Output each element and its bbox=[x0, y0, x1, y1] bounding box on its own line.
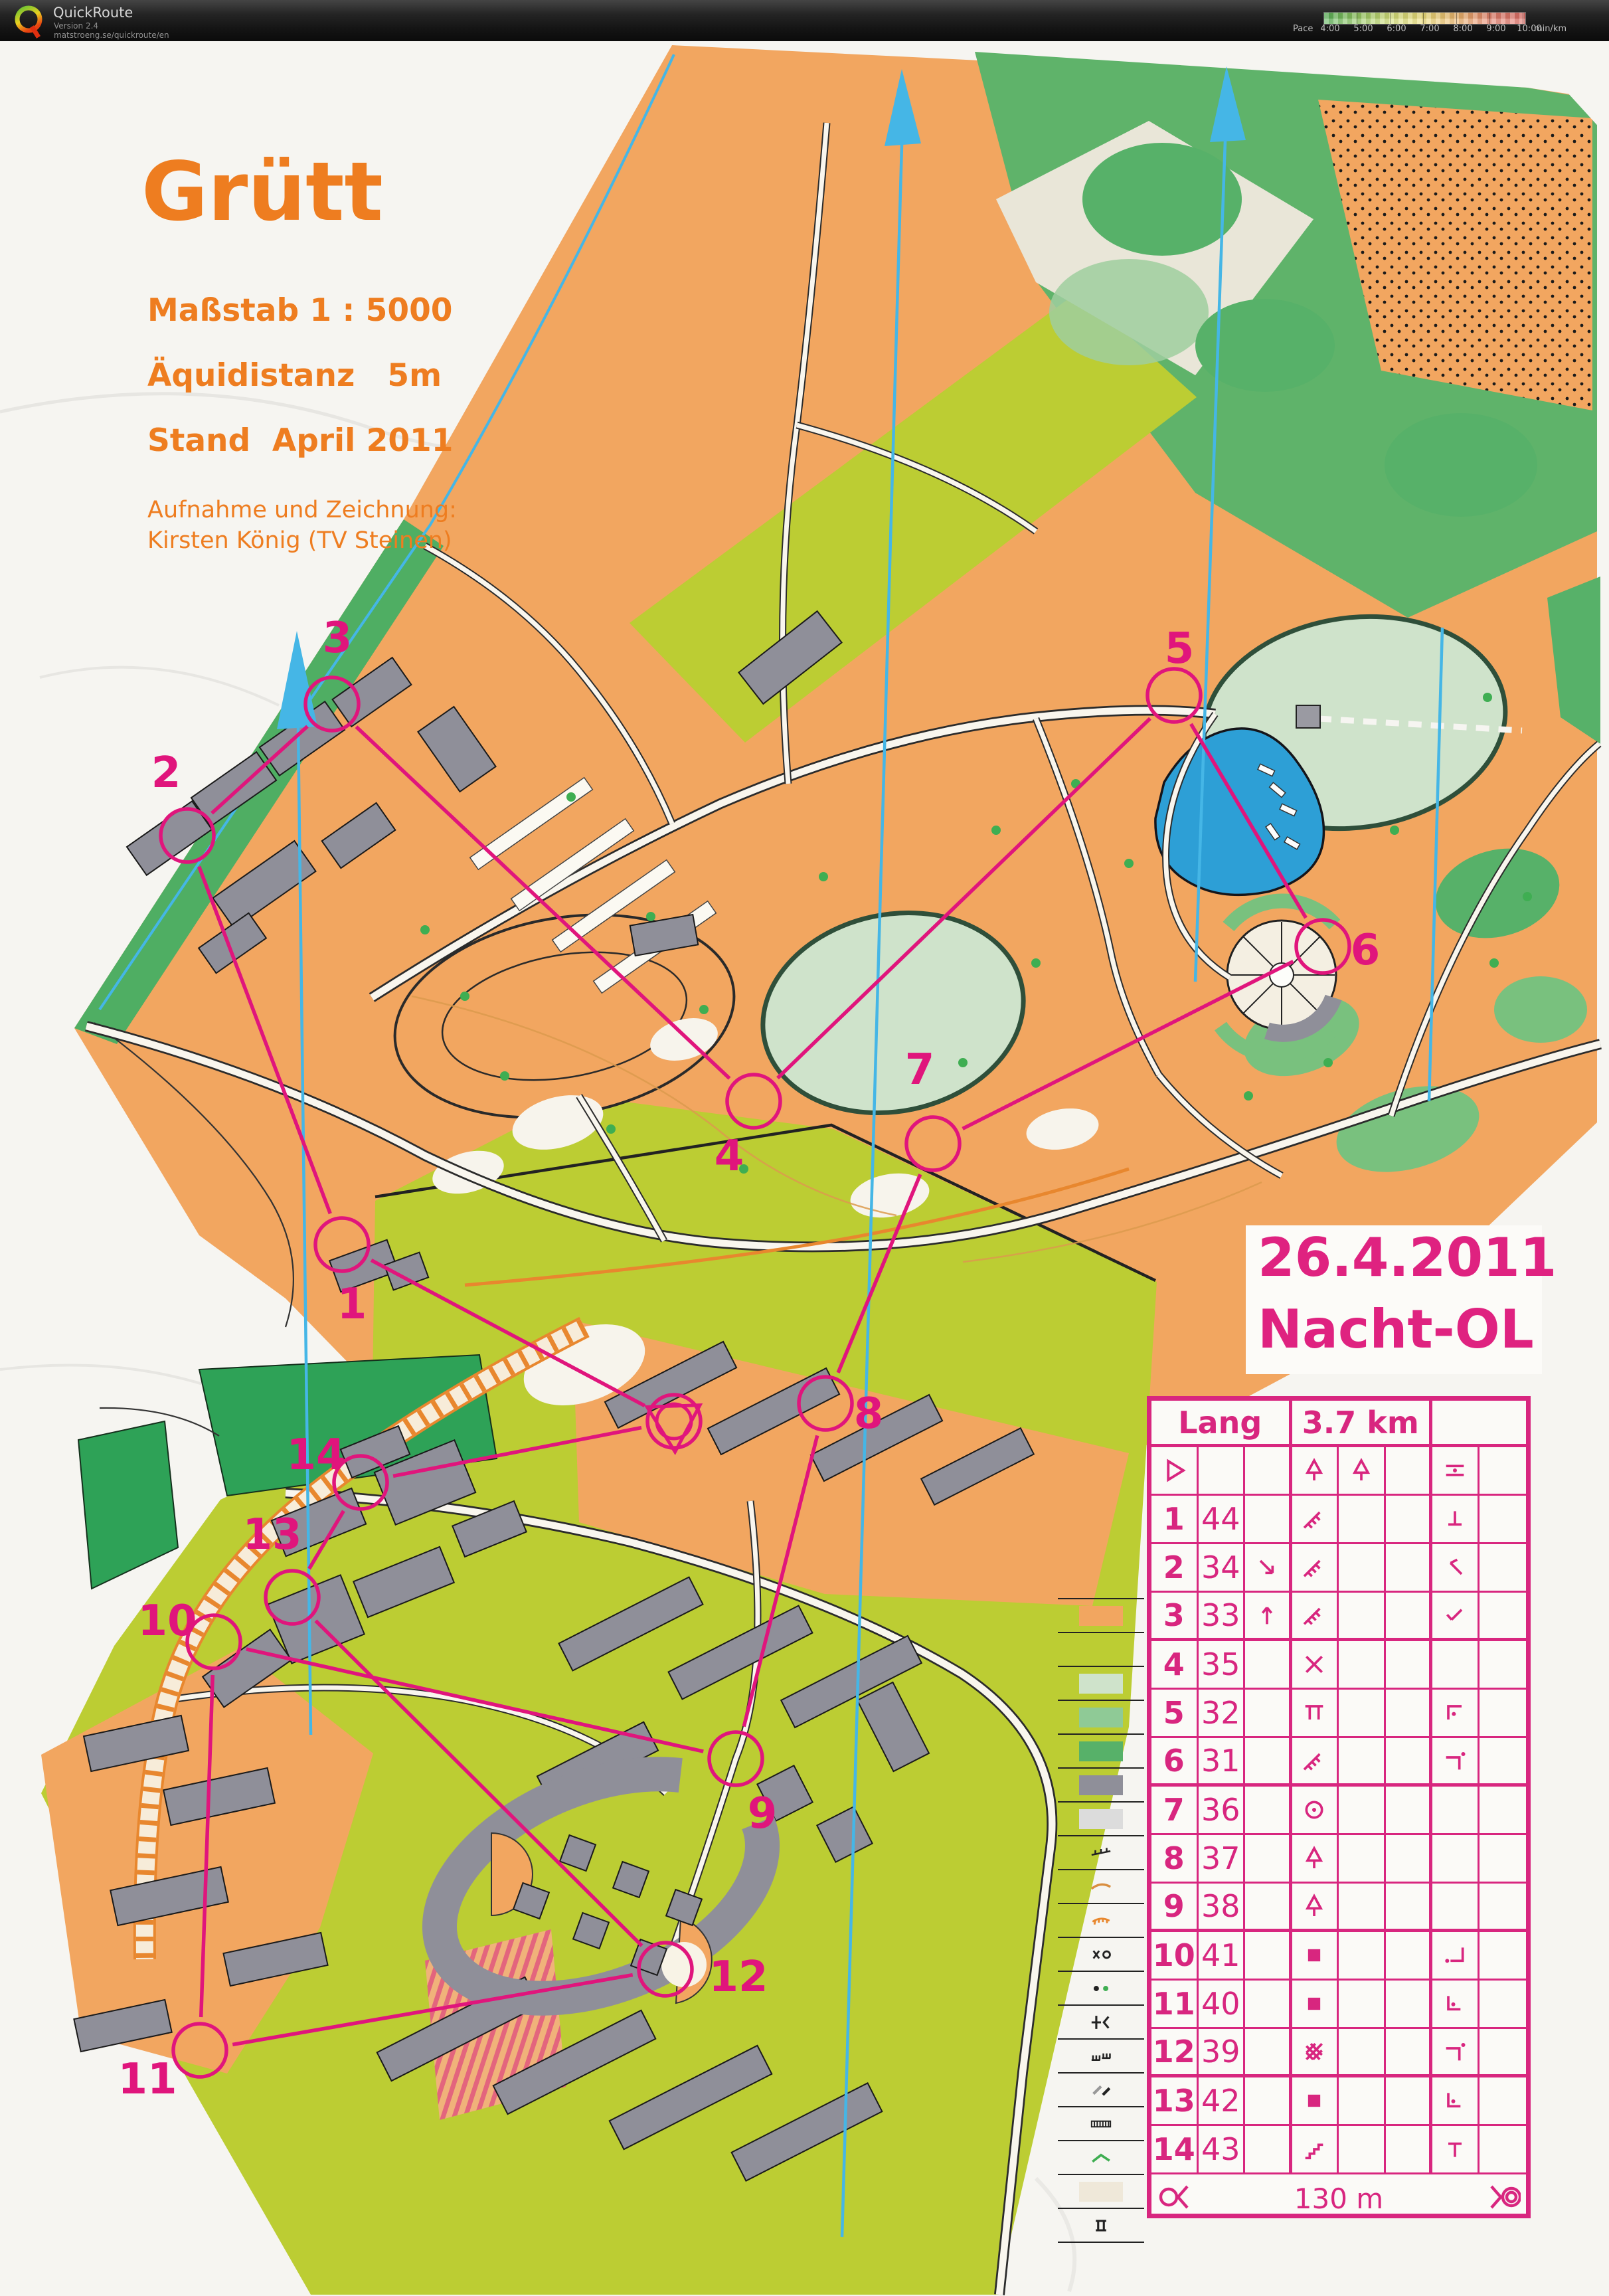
symbol-cell bbox=[1480, 1884, 1527, 1932]
symbol-cell bbox=[1386, 1690, 1433, 1738]
symbol-cell bbox=[1432, 2029, 1480, 2077]
control-number-1: 1 bbox=[337, 1280, 367, 1329]
control-number-11: 11 bbox=[118, 2055, 177, 2104]
symbol-cell bbox=[1292, 1884, 1339, 1932]
vegetation-walk-swatch bbox=[1079, 1708, 1123, 1727]
map-credit-line2: Kirsten König (TV Steinen) bbox=[147, 527, 452, 554]
legend-item-contour-icon bbox=[1058, 1870, 1144, 1904]
corner-sw-dot-icon bbox=[1442, 2087, 1468, 2114]
fin-right-icon bbox=[1489, 2181, 1521, 2213]
symbol-cell bbox=[1432, 1932, 1480, 1981]
leg-hedge-icon bbox=[1090, 2147, 1112, 2169]
app-version: Version 2.4 bbox=[54, 21, 98, 31]
control-number-cell: 4 bbox=[1151, 1641, 1199, 1690]
vegetation-slow-swatch bbox=[1079, 1674, 1123, 1694]
sheet-row: 1041 bbox=[1151, 1932, 1526, 1981]
symbol-cell bbox=[1339, 1738, 1386, 1787]
start-tri-icon bbox=[1160, 1457, 1188, 1484]
symbol-cell bbox=[1480, 1447, 1527, 1496]
sheet-row: 1140 bbox=[1151, 1981, 1526, 2029]
control-code-cell: 43 bbox=[1199, 2126, 1246, 2174]
symbol-cell bbox=[1292, 1690, 1339, 1738]
symbol-cell bbox=[1245, 1884, 1292, 1932]
symbol-cell bbox=[1386, 1447, 1433, 1496]
square-icon bbox=[1301, 1990, 1327, 2017]
symbol-cell bbox=[1292, 1738, 1339, 1787]
canopy-icon bbox=[1301, 1700, 1327, 1726]
legend-item-sand-swatch bbox=[1058, 2175, 1144, 2209]
app-titlebar: QuickRoute Version 2.4 matstroeng.se/qui… bbox=[0, 0, 1609, 41]
control-code-cell: 33 bbox=[1199, 1593, 1246, 1641]
circle-dot-icon bbox=[1301, 1797, 1327, 1823]
square-icon bbox=[1301, 2087, 1327, 2114]
pace-tick: 7:00 bbox=[1413, 24, 1446, 34]
symbol-cell bbox=[1480, 1544, 1527, 1593]
control-number-cell: 7 bbox=[1151, 1787, 1199, 1835]
control-number-9: 9 bbox=[748, 1789, 778, 1838]
symbol-cell bbox=[1386, 1835, 1433, 1884]
corner-ne-dot-icon bbox=[1442, 2038, 1468, 2065]
control-number-cell: 2 bbox=[1151, 1544, 1199, 1593]
control-number-12: 12 bbox=[709, 1953, 768, 2002]
perp-icon bbox=[1442, 1506, 1468, 1532]
symbol-cell bbox=[1432, 2077, 1480, 2126]
symbol-cell bbox=[1432, 1787, 1480, 1835]
symbol-cell bbox=[1480, 2029, 1527, 2077]
symbol-cell bbox=[1432, 1835, 1480, 1884]
symbol-cell bbox=[1245, 1981, 1292, 2029]
symbol-cell bbox=[1386, 1932, 1433, 1981]
legend-item-earth-bank-icon bbox=[1058, 1904, 1144, 1938]
control-code-cell: 41 bbox=[1199, 1932, 1246, 1981]
symbol-cell bbox=[1339, 1932, 1386, 1981]
tree-icon bbox=[1301, 1893, 1327, 1919]
sheet-row: 234 bbox=[1151, 1544, 1526, 1593]
control-number-cell: 13 bbox=[1151, 2077, 1199, 2126]
pace-ticks: 4:005:006:007:008:009:0010:00 bbox=[1323, 24, 1525, 35]
symbol-cell bbox=[1292, 1787, 1339, 1835]
leg-slash-icon bbox=[1090, 2079, 1112, 2101]
quickroute-logo-icon bbox=[11, 3, 46, 40]
control-number-4: 4 bbox=[715, 1132, 744, 1181]
control-number-cell: 9 bbox=[1151, 1884, 1199, 1932]
sheet-row: 435 bbox=[1151, 1641, 1526, 1690]
sheet-footer-row: 130 m bbox=[1151, 2174, 1526, 2222]
control-number-10: 10 bbox=[137, 1597, 197, 1646]
symbol-cell bbox=[1292, 1835, 1339, 1884]
symbol-cell bbox=[1480, 1593, 1527, 1641]
app-name: QuickRoute bbox=[53, 5, 133, 21]
symbol-cell bbox=[1480, 1690, 1527, 1738]
corner-se-dot-icon bbox=[1442, 1942, 1468, 1969]
leg-bank-icon bbox=[1090, 1909, 1112, 1932]
corner-ne-dot-icon bbox=[1442, 1747, 1468, 1774]
legend-item-barrier-fence-icon bbox=[1058, 2040, 1144, 2074]
symbol-cell bbox=[1480, 1496, 1527, 1544]
course-length: 3.7 km bbox=[1292, 1401, 1433, 1447]
symbol-cell bbox=[1432, 1593, 1480, 1641]
symbol-cell bbox=[1245, 1593, 1292, 1641]
leg-dots-icon bbox=[1090, 1977, 1112, 2000]
symbol-cell bbox=[1339, 2126, 1386, 2174]
symbol-cell bbox=[1432, 1690, 1480, 1738]
symbol-cell bbox=[1386, 1787, 1433, 1835]
sheet-row: 837 bbox=[1151, 1835, 1526, 1884]
symbol-cell bbox=[1386, 1738, 1433, 1787]
leg-fences2-icon bbox=[1090, 2045, 1112, 2068]
symbol-cell bbox=[1292, 1593, 1339, 1641]
control-code-cell: 32 bbox=[1199, 1690, 1246, 1738]
symbol-cell bbox=[1480, 1981, 1527, 2029]
sheet-row: 1342 bbox=[1151, 2077, 1526, 2126]
symbol-cell bbox=[1245, 1738, 1292, 1787]
rough-open-swatch bbox=[1079, 1640, 1123, 1660]
pace-tick: 5:00 bbox=[1347, 24, 1380, 34]
map-title: Grütt bbox=[141, 145, 383, 239]
control-code-cell: 38 bbox=[1199, 1884, 1246, 1932]
leg-steps-icon bbox=[1090, 2113, 1112, 2135]
sheet-row bbox=[1151, 1447, 1526, 1496]
legend-item-building-swatch bbox=[1058, 1769, 1144, 1803]
symbol-cell bbox=[1292, 1496, 1339, 1544]
control-number-7: 7 bbox=[905, 1045, 935, 1095]
control-number-2: 2 bbox=[151, 749, 181, 798]
pace-unit: min/km bbox=[1534, 24, 1567, 34]
symbol-cell bbox=[1245, 1641, 1292, 1690]
symbol-cell bbox=[1292, 1544, 1339, 1593]
symbol-cell bbox=[1292, 1447, 1339, 1496]
spur-icon bbox=[1301, 1747, 1327, 1774]
symbol-cell bbox=[1386, 1884, 1433, 1932]
symbol-cell bbox=[1292, 1932, 1339, 1981]
control-number-6: 6 bbox=[1351, 926, 1381, 975]
map-equidistance: Äquidistanz 5m bbox=[147, 357, 442, 394]
map-legend bbox=[1058, 1598, 1144, 2243]
cross-icon bbox=[1301, 1651, 1327, 1678]
symbol-cell bbox=[1245, 2029, 1292, 2077]
symbol-cell bbox=[1245, 1787, 1292, 1835]
sand-swatch bbox=[1079, 2182, 1123, 2202]
symbol-cell bbox=[1386, 2077, 1433, 2126]
control-number-5: 5 bbox=[1165, 624, 1195, 673]
square-icon bbox=[1301, 1942, 1327, 1969]
sheet-row: 736 bbox=[1151, 1787, 1526, 1835]
symbol-cell bbox=[1339, 1593, 1386, 1641]
symbol-cell bbox=[1432, 1981, 1480, 2029]
finish-icon bbox=[1489, 2181, 1521, 2216]
symbol-cell bbox=[1339, 2077, 1386, 2126]
symbol-cell bbox=[1339, 1787, 1386, 1835]
pace-tick: 9:00 bbox=[1480, 24, 1513, 34]
tree-icon bbox=[1301, 1457, 1327, 1484]
spur-icon bbox=[1301, 1602, 1327, 1629]
sheet-row: 631 bbox=[1151, 1738, 1526, 1787]
app-url: matstroeng.se/quickroute/en bbox=[54, 31, 169, 40]
symbol-cell bbox=[1245, 1496, 1292, 1544]
corner-nw-dot-icon bbox=[1442, 1700, 1468, 1726]
legend-item-open-land-swatch bbox=[1058, 1598, 1144, 1633]
symbol-cell bbox=[1292, 2126, 1339, 2174]
symbol-cell bbox=[1292, 2077, 1339, 2126]
legend-item-rough-open-swatch bbox=[1058, 1633, 1144, 1667]
symbol-cell bbox=[1386, 1496, 1433, 1544]
legend-item-vegetation-walk-swatch bbox=[1058, 1701, 1144, 1735]
legend-item-pillar-icon bbox=[1058, 2209, 1144, 2243]
control-code-cell: 40 bbox=[1199, 1981, 1246, 2029]
legend-item-vegetation-slow-swatch bbox=[1058, 1667, 1144, 1701]
legend-item-paved-area-swatch bbox=[1058, 1803, 1144, 1836]
sheet-row: 144 bbox=[1151, 1496, 1526, 1544]
symbol-cell bbox=[1480, 2126, 1527, 2174]
symbol-cell bbox=[1480, 1738, 1527, 1787]
symbol-cell bbox=[1386, 2126, 1433, 2174]
symbol-cell bbox=[1480, 1787, 1527, 1835]
control-number-8: 8 bbox=[854, 1389, 884, 1439]
tree-icon bbox=[1301, 1845, 1327, 1872]
symbol-cell bbox=[1339, 1544, 1386, 1593]
arrow-up-icon bbox=[1254, 1602, 1280, 1629]
control-code-cell bbox=[1199, 1447, 1246, 1496]
event-name: Nacht-OL bbox=[1258, 1298, 1534, 1360]
symbol-cell bbox=[1339, 1981, 1386, 2029]
pace-tick: 4:00 bbox=[1313, 24, 1347, 34]
pace-scale: Pace 4:005:006:007:008:009:0010:00 min/k… bbox=[1305, 0, 1597, 41]
control-code-cell: 42 bbox=[1199, 2077, 1246, 2126]
open-land-swatch bbox=[1079, 1606, 1123, 1626]
symbol-cell bbox=[1480, 1641, 1527, 1690]
control-number-cell: 8 bbox=[1151, 1835, 1199, 1884]
leg-cross-icon bbox=[1090, 2011, 1112, 2034]
pace-tick: 8:00 bbox=[1446, 24, 1480, 34]
symbol-cell bbox=[1432, 1641, 1480, 1690]
symbol-cell bbox=[1245, 1447, 1292, 1496]
symbol-cell bbox=[1292, 2029, 1339, 2077]
symbol-cell bbox=[1480, 2077, 1527, 2126]
symbol-cell bbox=[1339, 2029, 1386, 2077]
legend-item-vegetation-fight-swatch bbox=[1058, 1735, 1144, 1769]
symbol-cell bbox=[1432, 1884, 1480, 1932]
legend-item-crossing-x-o-icon bbox=[1058, 1938, 1144, 1972]
legend-item-junction-icon bbox=[1058, 2006, 1144, 2040]
sheet-row: 1239 bbox=[1151, 2029, 1526, 2077]
hatch-icon bbox=[1301, 2038, 1327, 2065]
symbol-cell bbox=[1386, 2029, 1433, 2077]
course-name: Lang bbox=[1151, 1401, 1292, 1447]
pace-gradient-bar bbox=[1323, 12, 1526, 25]
symbol-cell bbox=[1386, 1981, 1433, 2029]
legend-item-hedge-icon bbox=[1058, 2141, 1144, 2175]
building-swatch bbox=[1079, 1775, 1123, 1795]
symbol-cell bbox=[1339, 1690, 1386, 1738]
leg-fence-icon bbox=[1090, 1842, 1112, 1864]
control-number-cell: 6 bbox=[1151, 1738, 1199, 1787]
stairs-icon bbox=[1301, 2136, 1327, 2163]
control-number-cell bbox=[1151, 1447, 1199, 1496]
symbol-cell bbox=[1386, 1593, 1433, 1641]
symbol-cell bbox=[1432, 1544, 1480, 1593]
leg-pillar-icon bbox=[1090, 2214, 1112, 2237]
pace-label: Pace bbox=[1293, 24, 1313, 34]
legend-item-fence-icon bbox=[1058, 1836, 1144, 1870]
control-description-sheet: Lang 3.7 km 1442343334355326317368379381… bbox=[1147, 1396, 1531, 2218]
control-number-cell: 3 bbox=[1151, 1593, 1199, 1641]
bend-sw-icon bbox=[1442, 1602, 1468, 1629]
event-date: 26.4.2011 bbox=[1258, 1227, 1557, 1288]
symbol-cell bbox=[1432, 1738, 1480, 1787]
paved-area-swatch bbox=[1079, 1809, 1123, 1829]
sheet-row: 938 bbox=[1151, 1884, 1526, 1932]
sheet-row: 333 bbox=[1151, 1593, 1526, 1641]
control-number-cell: 5 bbox=[1151, 1690, 1199, 1738]
control-number-cell: 10 bbox=[1151, 1932, 1199, 1981]
symbol-cell bbox=[1339, 1641, 1386, 1690]
symbol-cell bbox=[1386, 1641, 1433, 1690]
legend-item-dot-objects-icon bbox=[1058, 1972, 1144, 2006]
symbol-cell bbox=[1245, 1835, 1292, 1884]
tree-icon bbox=[1348, 1457, 1375, 1484]
symbol-cell bbox=[1339, 1447, 1386, 1496]
control-number-13: 13 bbox=[242, 1510, 301, 1559]
control-number-cell: 14 bbox=[1151, 2126, 1199, 2174]
control-code-cell: 37 bbox=[1199, 1835, 1246, 1884]
map-credit-line1: Aufnahme und Zeichnung: bbox=[147, 497, 457, 523]
arrow-se-icon bbox=[1254, 1554, 1280, 1581]
control-code-cell: 31 bbox=[1199, 1738, 1246, 1787]
symbol-cell bbox=[1339, 1835, 1386, 1884]
symbol-cell bbox=[1432, 1447, 1480, 1496]
symbol-cell bbox=[1480, 1932, 1527, 1981]
symbol-cell bbox=[1432, 2126, 1480, 2174]
symbol-cell bbox=[1245, 1932, 1292, 1981]
symbol-cell bbox=[1339, 1496, 1386, 1544]
control-code-cell: 39 bbox=[1199, 2029, 1246, 2077]
legend-item-steps-icon bbox=[1058, 2107, 1144, 2141]
symbol-cell bbox=[1245, 1690, 1292, 1738]
symbol-cell bbox=[1432, 1496, 1480, 1544]
symbol-cell bbox=[1292, 1641, 1339, 1690]
control-code-cell: 36 bbox=[1199, 1787, 1246, 1835]
sheet-row: 1443 bbox=[1151, 2126, 1526, 2174]
symbol-cell bbox=[1245, 1544, 1292, 1593]
leg-xo-icon bbox=[1090, 1943, 1112, 1966]
control-number-cell: 1 bbox=[1151, 1496, 1199, 1544]
control-number-cell: 12 bbox=[1151, 2029, 1199, 2077]
between-lines-dot-icon bbox=[1442, 1457, 1468, 1484]
symbol-cell bbox=[1245, 2077, 1292, 2126]
symbol-cell bbox=[1339, 1884, 1386, 1932]
vegetation-fight-swatch bbox=[1079, 1741, 1123, 1761]
map-scale-text: Maßstab 1 : 5000 bbox=[147, 292, 453, 329]
finish-distance: 130 m bbox=[1151, 2182, 1526, 2215]
event-label: 26.4.2011 Nacht-OL bbox=[1246, 1225, 1542, 1374]
legend-item-wall-icon bbox=[1058, 2074, 1144, 2107]
control-number-cell: 11 bbox=[1151, 1981, 1199, 2029]
symbol-cell bbox=[1386, 1544, 1433, 1593]
control-code-cell: 44 bbox=[1199, 1496, 1246, 1544]
symbol-cell bbox=[1245, 2126, 1292, 2174]
spur-icon bbox=[1301, 1506, 1327, 1532]
map-edition: Stand April 2011 bbox=[147, 422, 453, 459]
tee-icon bbox=[1442, 2136, 1468, 2163]
control-number-3: 3 bbox=[323, 614, 353, 663]
sheet-row: 532 bbox=[1151, 1690, 1526, 1738]
symbol-cell bbox=[1480, 1835, 1527, 1884]
symbol-cell bbox=[1292, 1981, 1339, 2029]
pace-tick: 6:00 bbox=[1380, 24, 1413, 34]
spur-icon bbox=[1301, 1554, 1327, 1581]
control-code-cell: 35 bbox=[1199, 1641, 1246, 1690]
control-code-cell: 34 bbox=[1199, 1544, 1246, 1593]
control-number-14: 14 bbox=[286, 1431, 345, 1480]
leg-contour-icon bbox=[1090, 1876, 1112, 1898]
sheet-header-row: Lang 3.7 km bbox=[1151, 1401, 1526, 1447]
bend-nw-icon bbox=[1442, 1554, 1468, 1581]
corner-sw-dot-icon bbox=[1442, 1990, 1468, 2017]
